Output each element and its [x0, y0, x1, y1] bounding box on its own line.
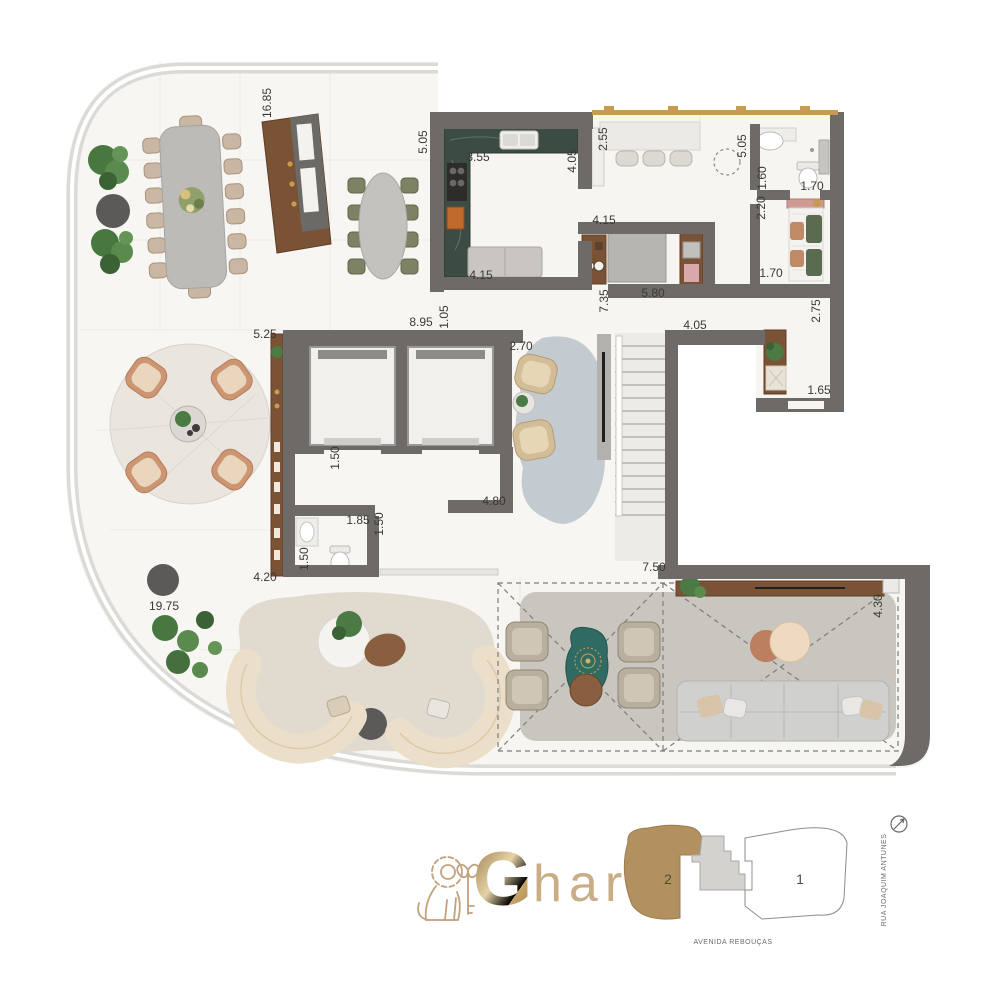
dimension-label: 5.80 — [641, 286, 665, 300]
oven — [447, 207, 464, 229]
staircase — [615, 333, 665, 561]
outdoor-round-lounge — [110, 344, 270, 504]
terrace-armchair — [506, 622, 548, 661]
logo-rest-text: har — [533, 855, 629, 913]
dimension-label: 4.05 — [565, 149, 579, 173]
elevator-cab — [408, 347, 493, 445]
dimension-label: 8.95 — [409, 315, 433, 329]
dimension-label: 2.55 — [596, 127, 610, 151]
service-bedroom — [787, 199, 824, 281]
bathroom-sink — [757, 132, 783, 150]
north-arrow-icon — [891, 816, 907, 832]
alcove-console — [764, 330, 786, 394]
dimension-label: 1.70 — [800, 179, 824, 193]
dimension-label: 1.50 — [372, 512, 386, 536]
pillow — [790, 222, 804, 240]
plant — [516, 395, 528, 407]
dimension-label: 7.50 — [642, 560, 666, 574]
logo-lead-letter: G — [473, 837, 532, 922]
dimension-label: 16.85 — [260, 88, 274, 118]
dimension-label: 1.70 — [759, 266, 783, 280]
shower-bench — [819, 140, 829, 174]
dimension-label: 2.75 — [809, 299, 823, 323]
wall-niche — [883, 578, 899, 593]
elevator-cab — [310, 347, 395, 445]
wall-lamp — [813, 199, 821, 207]
dimension-label: 1.50 — [328, 446, 342, 470]
lion-key-logo-icon — [418, 857, 479, 920]
dimension-label: 4.15 — [592, 213, 616, 227]
bar-stool — [616, 151, 638, 166]
dimension-label: 1.60 — [755, 166, 769, 190]
street-label-bottom: AVENIDA REBOUÇAS — [693, 939, 772, 946]
dimension-label: 3.55 — [466, 150, 490, 164]
dimension-label: 2.20 — [754, 196, 768, 220]
tv-sitting-area — [511, 334, 611, 524]
blanket — [806, 215, 822, 243]
blanket — [806, 249, 822, 276]
terrace-armchair — [618, 622, 660, 662]
tv-screen — [602, 352, 605, 442]
dimension-label: 4.05 — [683, 318, 707, 332]
dimension-label: 7.35 — [597, 289, 611, 313]
pillow — [723, 697, 748, 719]
dimension-label: 4.15 — [469, 268, 493, 282]
dimension-label: 19.75 — [149, 599, 179, 613]
service-sink — [683, 242, 700, 258]
dimension-label: 4.80 — [482, 494, 506, 508]
door-opening — [788, 401, 824, 409]
wood-round-table — [570, 674, 602, 706]
floor-plan: 16.85 5.05 3.55 4.05 2.55 5.05 1.60 1.70… — [0, 0, 1000, 1000]
cold-room — [608, 232, 666, 282]
terrace-armchair — [506, 670, 548, 710]
terrace-armchair — [618, 668, 660, 708]
cream-table — [770, 622, 810, 662]
dimension-label: 1.85 — [346, 513, 370, 527]
dimension-label: 4.20 — [253, 570, 277, 584]
dimension-label: 2.70 — [509, 339, 533, 353]
street-label-right: RUA JOAQUIM ANTUNES — [881, 834, 888, 927]
plant — [271, 346, 283, 358]
bar-stool — [670, 151, 692, 166]
bar-stool — [643, 151, 665, 166]
glass-facade — [592, 106, 838, 115]
towel — [684, 264, 699, 282]
hall-console — [271, 334, 283, 576]
elevator-block — [293, 336, 512, 457]
terrace-living — [498, 576, 899, 751]
keyplan-unit-2-label: 2 — [664, 871, 672, 887]
keyplan-unit-1-label: 1 — [796, 871, 804, 887]
dimension-label: 5.05 — [735, 134, 749, 158]
round-side-table — [96, 194, 130, 228]
floorplan-page: 16.85 5.05 3.55 4.05 2.55 5.05 1.60 1.70… — [0, 0, 1000, 1000]
brand-logo: G har — [418, 837, 629, 922]
dimension-label: 4.30 — [871, 594, 885, 618]
dimension-label: 1.65 — [807, 383, 831, 397]
round-side-table — [147, 564, 179, 596]
terrace-sofa — [677, 681, 889, 741]
dimension-label: 1.05 — [437, 305, 451, 329]
dimension-label: 5.25 — [253, 327, 277, 341]
pillow — [790, 250, 804, 267]
site-key-plan: 2 1 RUA JOAQUIM ANTUNES AVENIDA REBOUÇAS — [624, 816, 907, 946]
sliding-door — [380, 569, 498, 575]
dimension-label: 1.50 — [297, 547, 311, 571]
dimension-label: 5.05 — [416, 130, 430, 154]
oval-dining-table — [348, 173, 418, 279]
stair-rail — [616, 336, 622, 516]
